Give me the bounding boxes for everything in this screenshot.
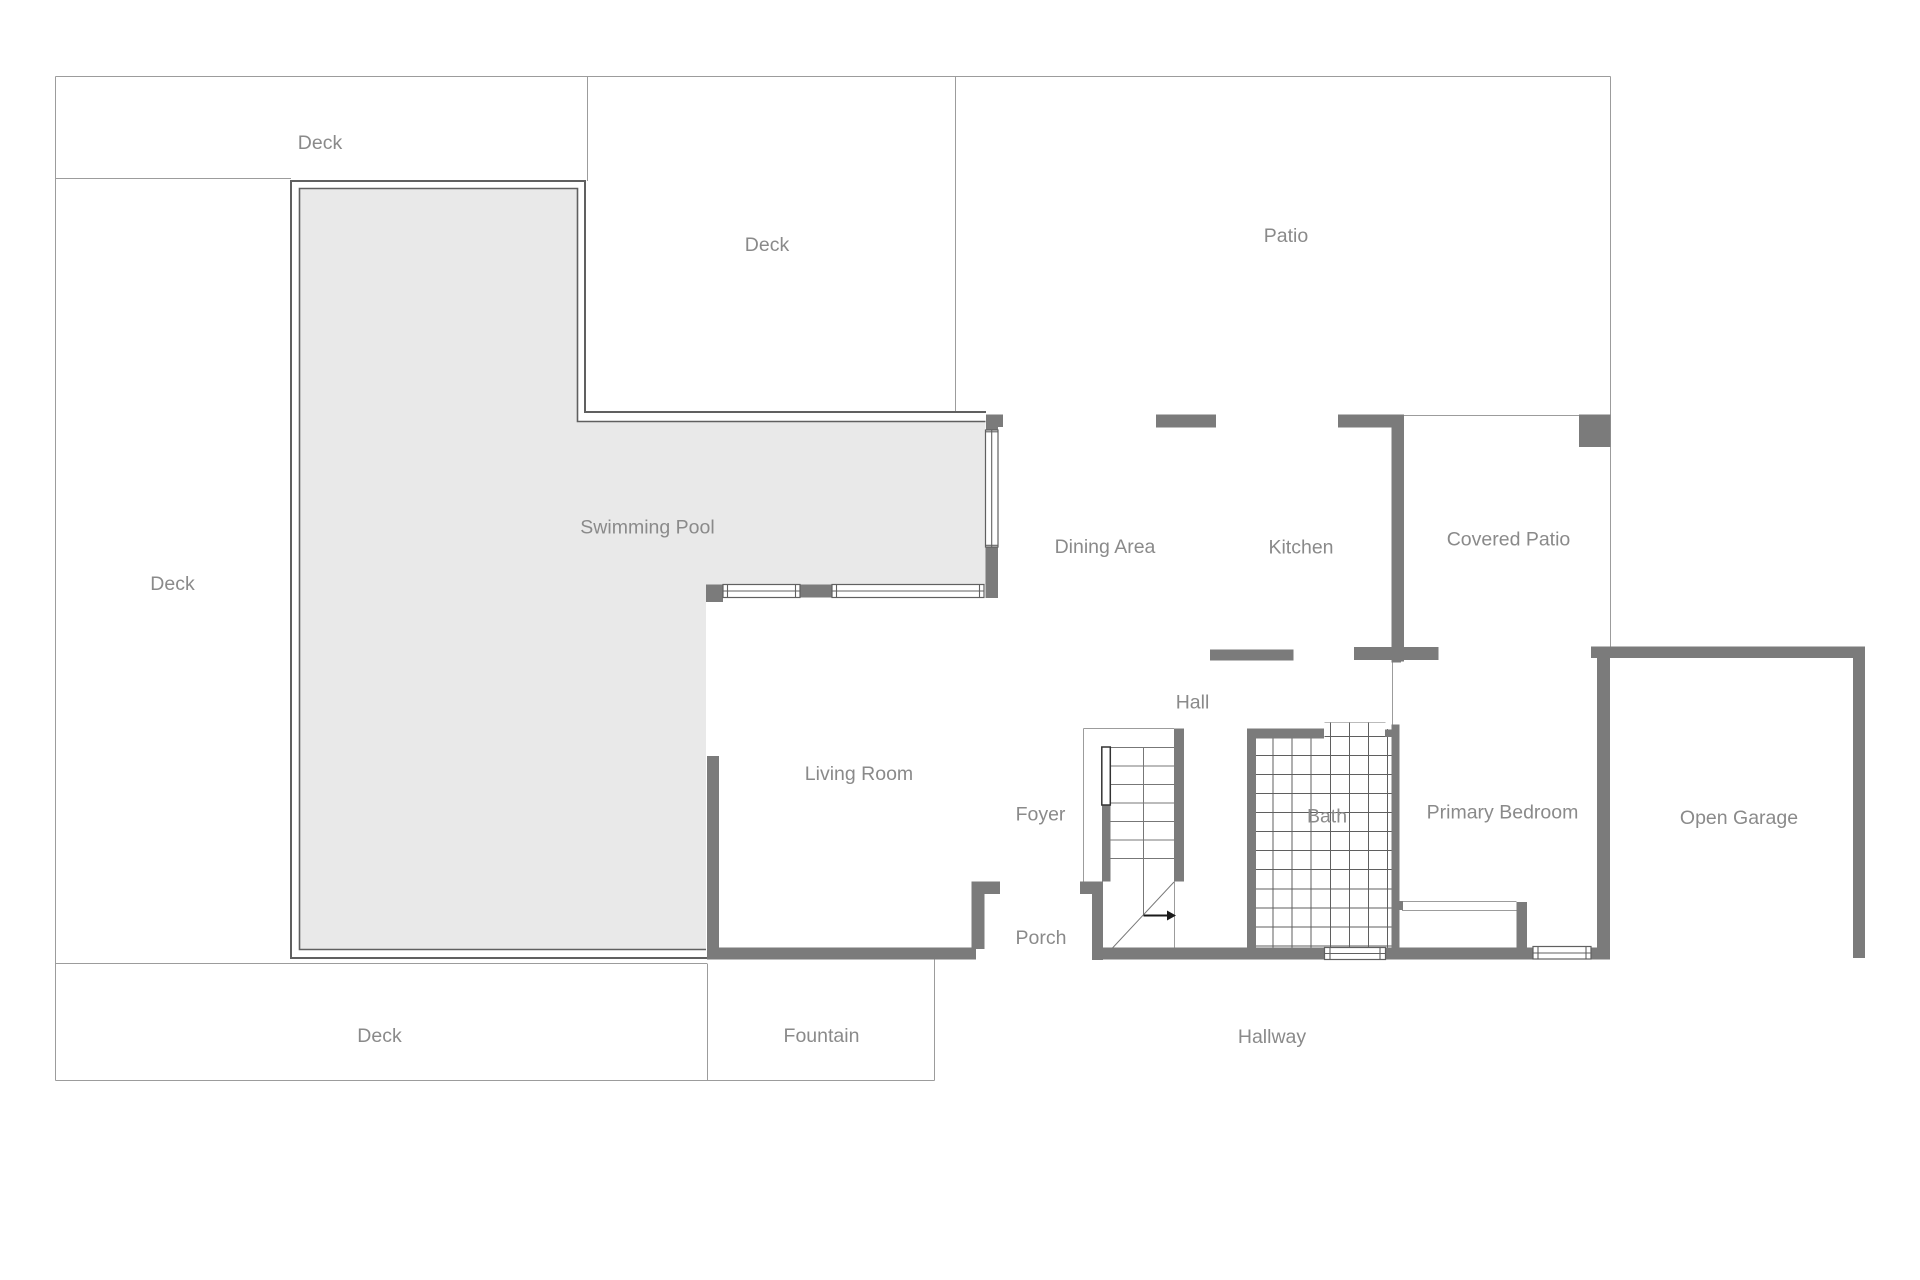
svg-text:Deck: Deck — [357, 1025, 402, 1047]
svg-text:Primary Bedroom: Primary Bedroom — [1427, 802, 1579, 824]
svg-text:Bath: Bath — [1307, 806, 1347, 828]
svg-text:Dining Area: Dining Area — [1055, 536, 1156, 558]
svg-text:Deck: Deck — [298, 132, 343, 154]
svg-text:Swimming Pool: Swimming Pool — [580, 517, 714, 539]
svg-text:Deck: Deck — [745, 234, 790, 256]
svg-text:Patio: Patio — [1264, 225, 1309, 247]
svg-text:Hallway: Hallway — [1238, 1026, 1307, 1048]
svg-text:Deck: Deck — [150, 573, 195, 595]
svg-text:Kitchen: Kitchen — [1268, 537, 1333, 559]
svg-text:Foyer: Foyer — [1016, 804, 1066, 826]
svg-text:Porch: Porch — [1016, 927, 1067, 949]
svg-text:Fountain: Fountain — [784, 1025, 860, 1047]
svg-text:Covered Patio: Covered Patio — [1447, 529, 1571, 551]
svg-text:Hall: Hall — [1176, 692, 1210, 714]
svg-text:Open Garage: Open Garage — [1680, 807, 1798, 829]
svg-text:Living Room: Living Room — [805, 763, 913, 785]
